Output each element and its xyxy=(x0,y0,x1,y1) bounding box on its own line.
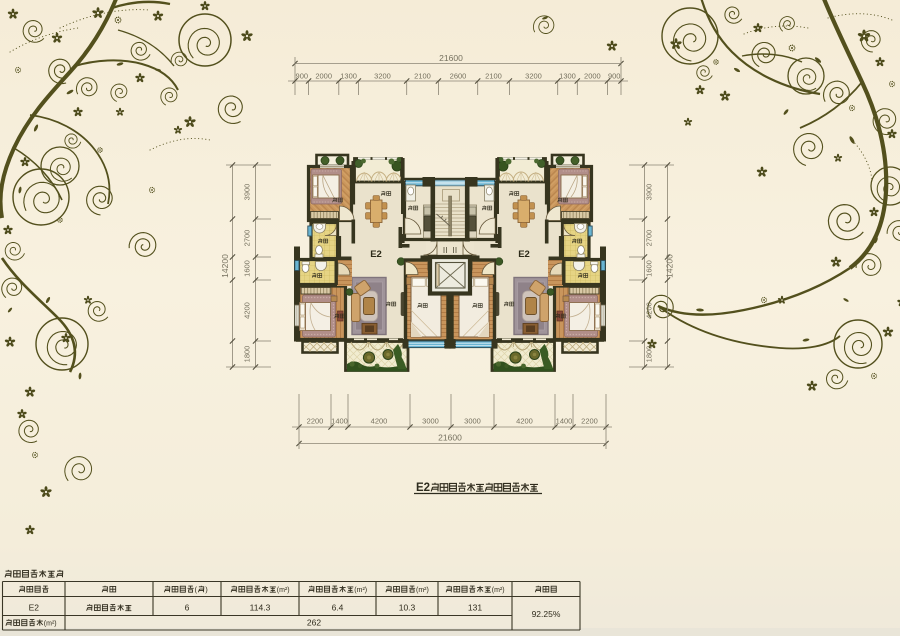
svg-text:2700: 2700 xyxy=(243,230,252,247)
svg-text:6: 6 xyxy=(185,603,190,613)
svg-text:3900: 3900 xyxy=(645,184,654,201)
svg-text:14200: 14200 xyxy=(220,254,230,278)
svg-text:(m²): (m²) xyxy=(416,587,429,594)
svg-text:1600: 1600 xyxy=(645,260,654,277)
svg-text:1400: 1400 xyxy=(556,417,573,426)
svg-text:131: 131 xyxy=(468,603,482,613)
svg-text:2100: 2100 xyxy=(485,72,502,81)
svg-text:1400: 1400 xyxy=(331,417,348,426)
svg-text:1600: 1600 xyxy=(243,260,252,277)
svg-text:21600: 21600 xyxy=(438,433,462,443)
svg-text:1300: 1300 xyxy=(559,72,576,81)
svg-text:3200: 3200 xyxy=(525,72,542,81)
svg-text:2600: 2600 xyxy=(450,72,467,81)
svg-text:2000: 2000 xyxy=(315,72,332,81)
svg-text:6.4: 6.4 xyxy=(332,603,344,613)
svg-text:2000: 2000 xyxy=(584,72,601,81)
svg-text:3000: 3000 xyxy=(464,417,481,426)
svg-text:114.3: 114.3 xyxy=(250,603,271,613)
svg-text:2700: 2700 xyxy=(645,230,654,247)
svg-text:2200: 2200 xyxy=(581,417,598,426)
svg-text:(m²): (m²) xyxy=(277,587,290,594)
svg-text:3900: 3900 xyxy=(243,184,252,201)
svg-text:(m²): (m²) xyxy=(492,587,505,594)
svg-text:1300: 1300 xyxy=(340,72,357,81)
svg-text:E2: E2 xyxy=(416,482,430,494)
svg-text:E2: E2 xyxy=(29,603,40,613)
svg-text:E2: E2 xyxy=(370,249,382,260)
svg-text:(m²): (m²) xyxy=(354,587,367,594)
svg-text:4200: 4200 xyxy=(243,302,252,319)
svg-text:10.3: 10.3 xyxy=(399,603,416,613)
svg-text:92.25%: 92.25% xyxy=(532,609,561,619)
svg-text:2200: 2200 xyxy=(307,417,324,426)
svg-text:3200: 3200 xyxy=(374,72,391,81)
svg-text:4200: 4200 xyxy=(371,417,388,426)
svg-text:900: 900 xyxy=(608,72,621,81)
svg-text:262: 262 xyxy=(307,618,321,628)
svg-text:(m²): (m²) xyxy=(44,621,57,628)
svg-text:1800: 1800 xyxy=(645,346,654,363)
svg-text:E2: E2 xyxy=(518,249,530,260)
svg-text:1800: 1800 xyxy=(243,346,252,363)
svg-text:900: 900 xyxy=(296,72,309,81)
svg-text:4200: 4200 xyxy=(516,417,533,426)
svg-text:14200: 14200 xyxy=(665,254,675,278)
svg-text:4200: 4200 xyxy=(645,302,654,319)
svg-text:2100: 2100 xyxy=(414,72,431,81)
svg-text:21600: 21600 xyxy=(439,53,463,63)
svg-text:3000: 3000 xyxy=(422,417,439,426)
